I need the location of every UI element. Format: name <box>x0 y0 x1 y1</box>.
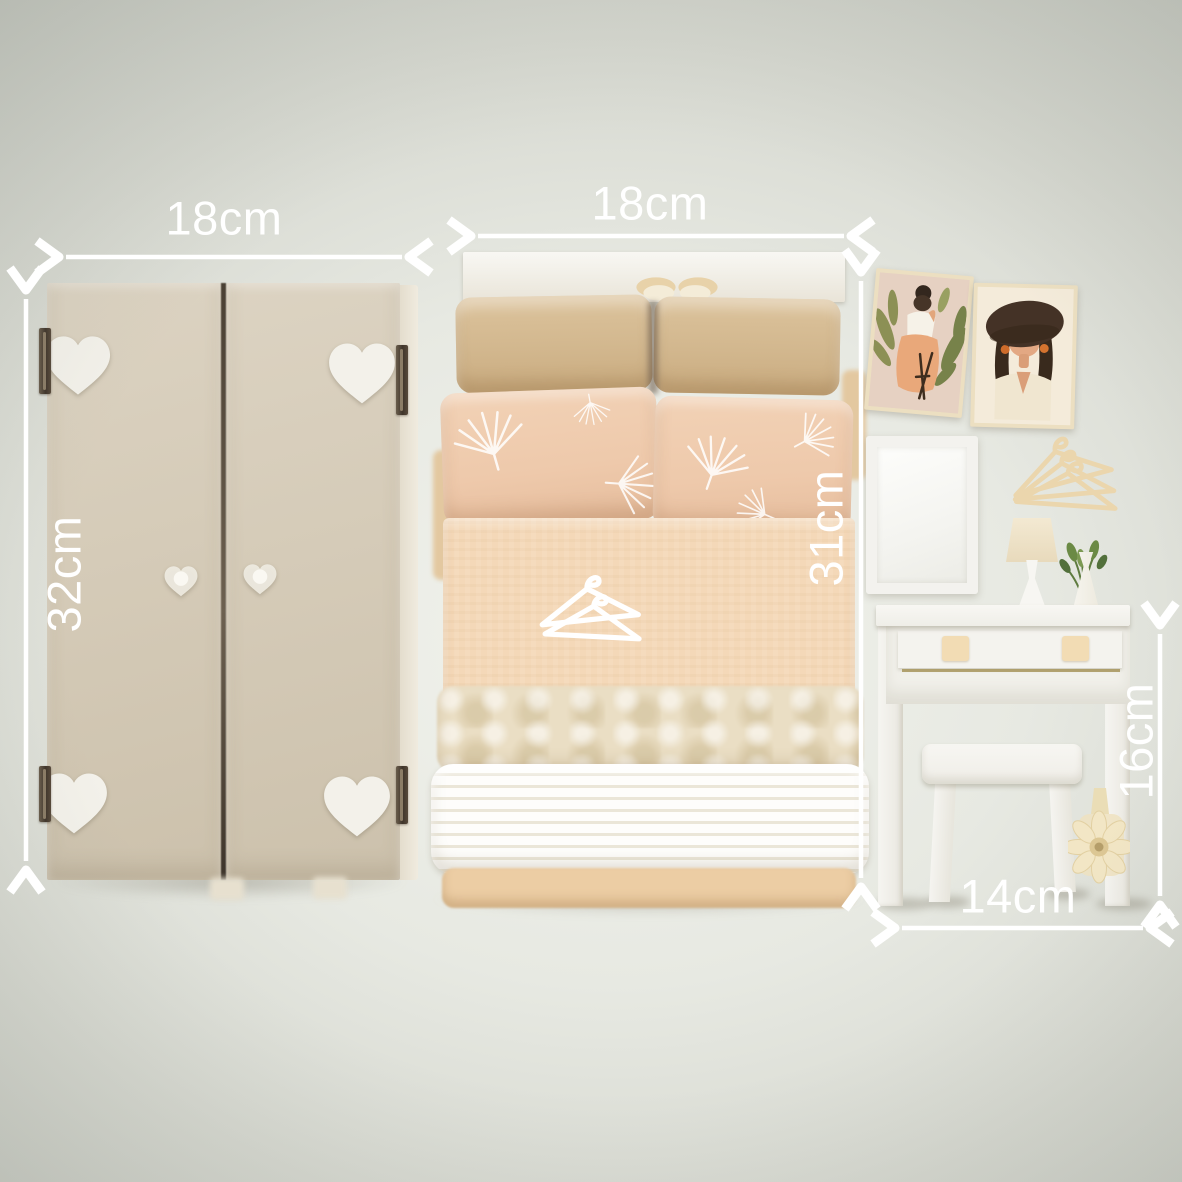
wardrobe-width-label: 18cm <box>166 195 283 242</box>
hanger-motif-icon <box>525 556 657 656</box>
wall-art-2-illustration <box>974 287 1074 425</box>
bed-length-label: 31cm <box>803 470 850 587</box>
pillow-front-left <box>440 386 660 525</box>
drawer-gap-line <box>902 669 1120 672</box>
hinge-icon <box>396 345 408 415</box>
vanity-width-label: 14cm <box>960 873 1077 920</box>
hinge-icon <box>39 328 51 394</box>
dim-line-wardrobe-width <box>37 241 431 273</box>
wardrobe <box>45 283 417 880</box>
lamp-base <box>1014 560 1050 608</box>
daisy-bag-icon <box>1068 786 1130 886</box>
wall-hangers-icon <box>998 426 1130 518</box>
heart-decoration-icon <box>41 331 115 399</box>
drawer-knob <box>942 636 969 661</box>
pillow-back-left <box>455 294 653 393</box>
wall-mirror <box>866 436 978 594</box>
stool-left-leg <box>929 782 956 902</box>
hinge-icon <box>39 766 51 822</box>
bed-width-label: 18cm <box>592 180 709 227</box>
vanity-tabletop <box>876 605 1130 626</box>
blanket-fluffy <box>437 686 863 772</box>
wardrobe-height-label: 32cm <box>41 516 88 633</box>
hinge-icon <box>396 766 408 824</box>
vanity-drawer <box>898 631 1122 668</box>
ginkgo-print-icon <box>440 386 660 525</box>
wall-art-1-illustration <box>868 272 969 413</box>
heart-knob-icon <box>162 563 200 599</box>
wall-art-palm-woman <box>864 268 974 418</box>
heart-decoration-icon <box>324 338 400 408</box>
blanket-knit <box>431 764 869 874</box>
heart-knob-icon <box>241 561 279 597</box>
wardrobe-foot <box>313 877 347 899</box>
bed-headboard <box>463 252 845 302</box>
scene: 18cm 32cm 18cm 31cm 16cm 14cm <box>0 0 1182 1182</box>
drawer-knob <box>1062 636 1089 661</box>
bedspread <box>443 518 855 704</box>
heart-decoration-icon <box>319 771 395 841</box>
vanity-height-label: 16cm <box>1113 683 1160 800</box>
wall-art-hat-woman <box>970 283 1078 430</box>
blanket-foot <box>442 868 856 908</box>
pillow-gap-shadow <box>648 302 658 394</box>
wardrobe-foot <box>210 878 244 900</box>
pillow-back-right <box>653 296 841 395</box>
stool-seat <box>922 744 1082 784</box>
wardrobe-door-gap <box>221 283 226 880</box>
